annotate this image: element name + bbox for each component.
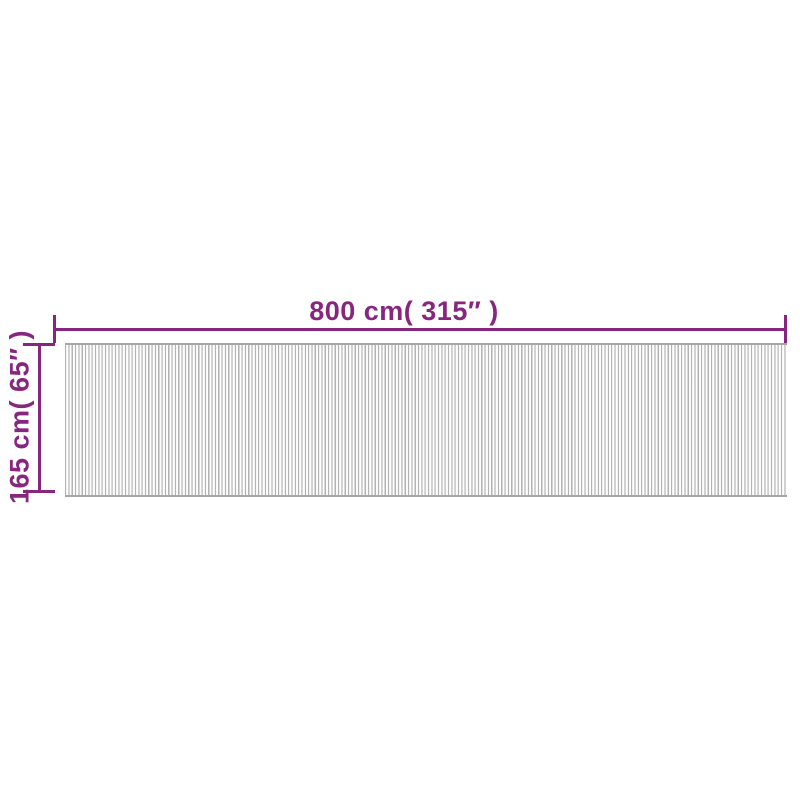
bamboo-mat-image bbox=[65, 343, 787, 497]
height-dimension-top-cap bbox=[23, 343, 55, 346]
width-dimension-right-cap bbox=[784, 315, 787, 343]
product-dimension-diagram: 800 cm( 315″ ) 165 cm( 65″ ) bbox=[0, 0, 800, 800]
height-dimension-bottom-cap bbox=[23, 490, 55, 493]
width-dimension-left-cap bbox=[53, 315, 56, 343]
height-dimension-line bbox=[38, 345, 41, 493]
height-dimension-label: 165 cm( 65″ ) bbox=[5, 330, 36, 504]
width-dimension-line bbox=[53, 328, 787, 331]
width-dimension-label: 800 cm( 315″ ) bbox=[309, 296, 499, 327]
